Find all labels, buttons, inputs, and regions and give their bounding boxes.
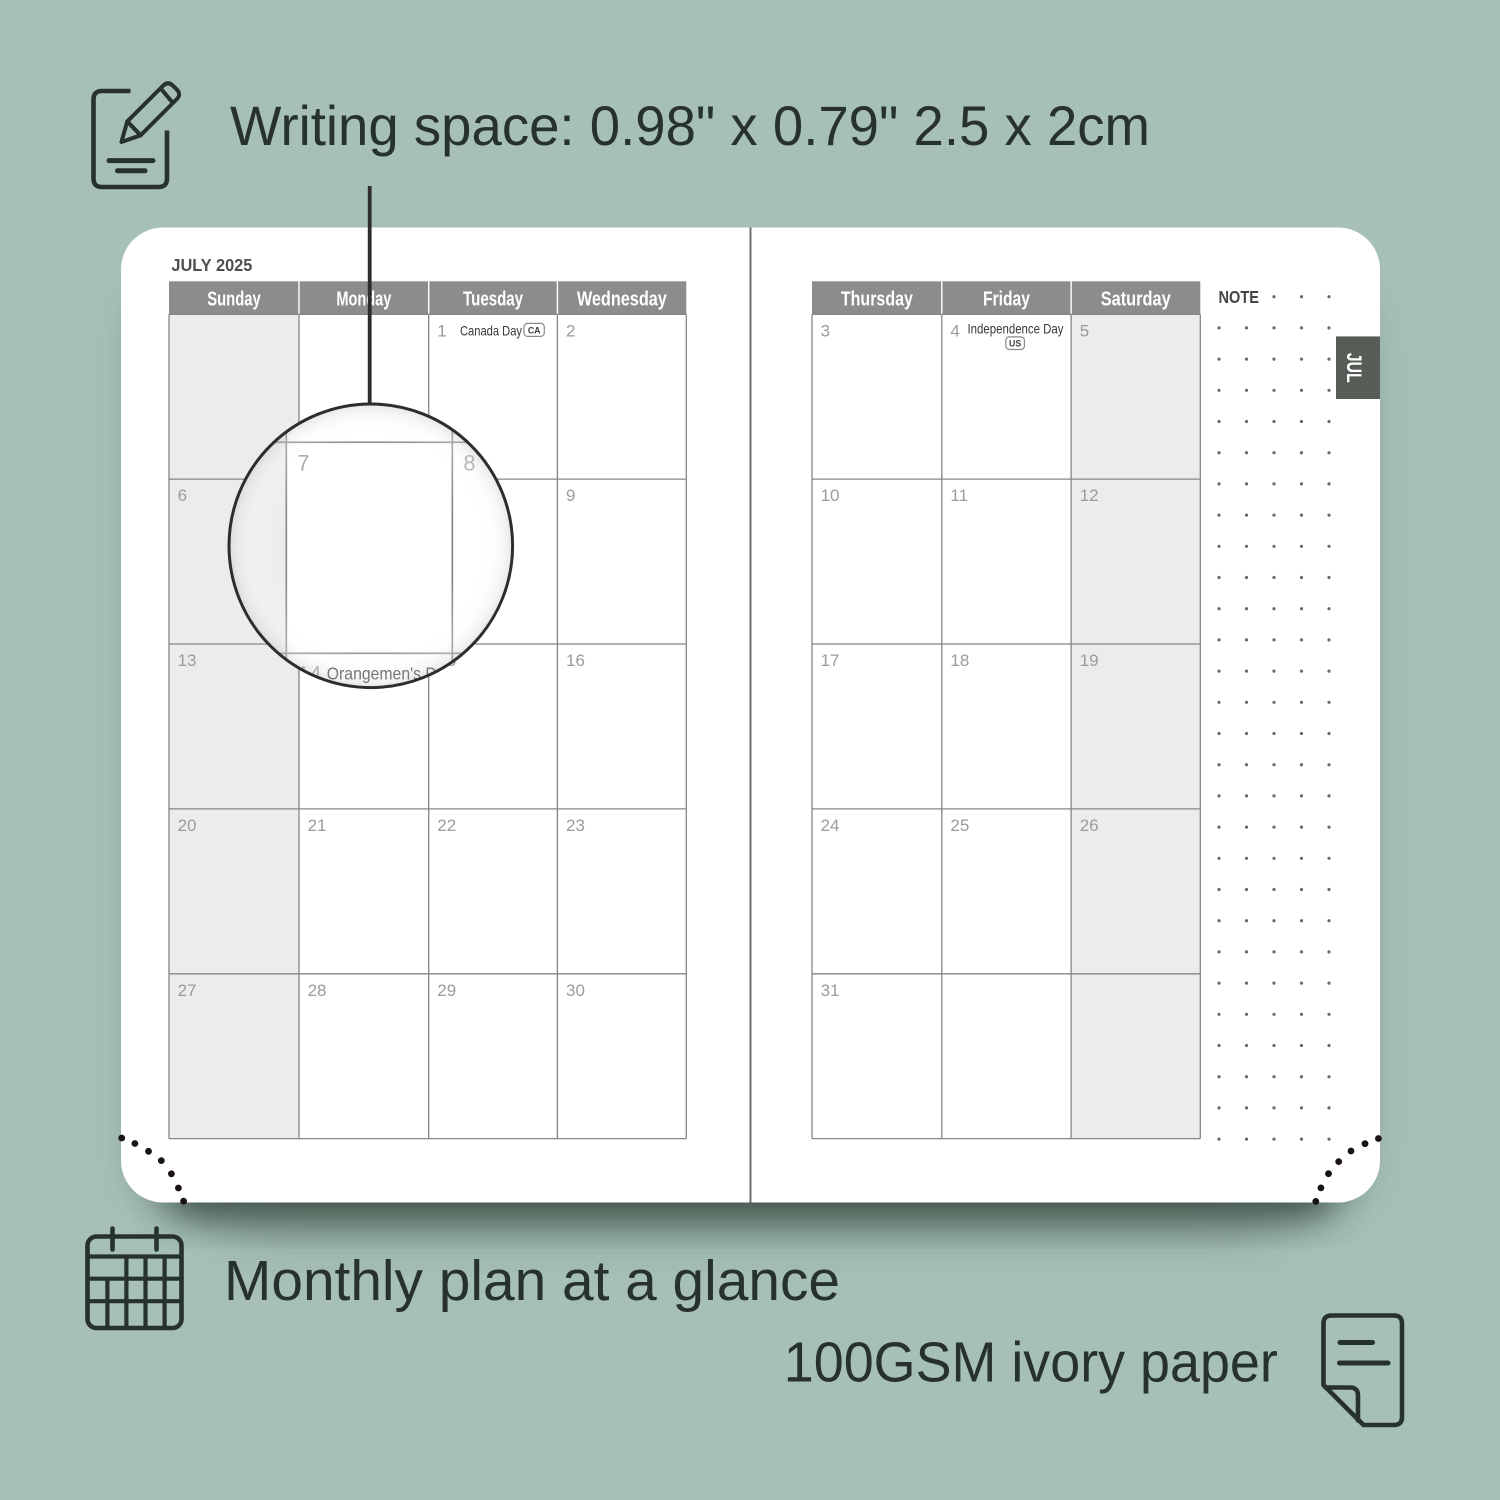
svg-text:Tuesday: Tuesday [463,289,524,311]
svg-text:Thursday: Thursday [841,289,914,311]
svg-text:10: 10 [821,486,840,505]
svg-text:27: 27 [178,981,197,1000]
svg-text:28: 28 [308,981,327,1000]
svg-text:3: 3 [821,321,830,340]
svg-text:11: 11 [950,486,968,505]
svg-text:Writing space: 0.98" x 0.79" 2: Writing space: 0.98" x 0.79" 2.5 x 2cm [230,94,1150,157]
svg-text:Monday: Monday [336,289,392,311]
svg-text:25: 25 [950,816,969,835]
svg-text:24: 24 [821,816,840,835]
svg-text:4: 4 [950,321,959,340]
svg-text:Monthly plan at a glance: Monthly plan at a glance [224,1249,840,1312]
svg-text:Canada Day: Canada Day [460,323,522,339]
svg-text:31: 31 [821,981,840,1000]
svg-text:CA: CA [528,325,541,335]
svg-text:1: 1 [437,321,446,340]
svg-text:19: 19 [1080,651,1099,670]
svg-text:Friday: Friday [983,289,1031,311]
svg-text:21: 21 [308,816,327,835]
svg-text:22: 22 [437,816,456,835]
svg-text:12: 12 [1080,486,1099,505]
svg-text:100GSM ivory paper: 100GSM ivory paper [784,1331,1278,1394]
svg-text:18: 18 [950,651,969,670]
svg-text:JUL: JUL [1342,353,1365,383]
svg-text:30: 30 [566,981,585,1000]
svg-text:Sunday: Sunday [207,289,261,311]
svg-text:Saturday: Saturday [1101,289,1172,311]
svg-text:13: 13 [178,651,197,670]
svg-text:5: 5 [1080,321,1089,340]
svg-text:Wednesday: Wednesday [577,289,668,311]
svg-text:JULY 2025: JULY 2025 [171,255,252,275]
svg-text:Independence Day: Independence Day [968,321,1064,337]
svg-text:26: 26 [1080,816,1099,835]
svg-text:6: 6 [178,486,187,505]
svg-text:23: 23 [566,816,585,835]
svg-text:2: 2 [566,321,575,340]
svg-text:29: 29 [437,981,456,1000]
svg-text:20: 20 [178,816,197,835]
svg-text:US: US [1009,339,1021,349]
svg-text:9: 9 [566,486,575,505]
svg-text:16: 16 [566,651,585,670]
svg-text:NOTE: NOTE [1219,287,1260,307]
svg-text:17: 17 [821,651,840,670]
